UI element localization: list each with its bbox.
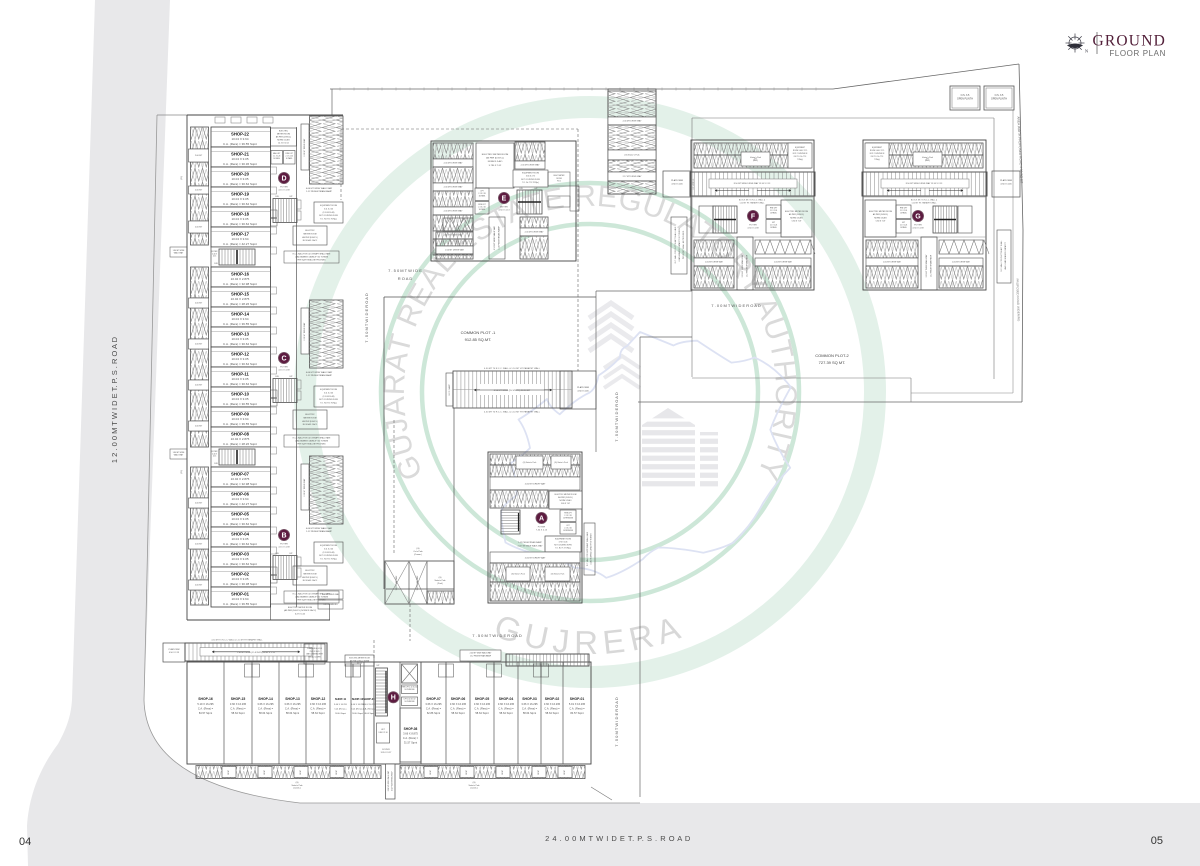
- svg-text:2.00 MT DRIVE WAY: 2.00 MT DRIVE WAY: [705, 261, 724, 264]
- svg-text:58.64 Sqmt: 58.64 Sqmt: [451, 711, 465, 715]
- svg-text:A: A: [539, 515, 544, 522]
- svg-text:SHOP-01: SHOP-01: [570, 697, 585, 701]
- svg-text:SHOP-12: SHOP-12: [231, 351, 250, 356]
- svg-text:2.00 MT DRIVE WAY: 2.00 MT DRIVE WAY: [525, 556, 546, 559]
- svg-text:SHOP-08: SHOP-08: [231, 431, 250, 436]
- svg-text:FIRE LIFT: FIRE LIFT: [770, 208, 777, 210]
- svg-text:T.O. Rs/77.5 TON(a): T.O. Rs/77.5 TON(a): [320, 219, 337, 221]
- svg-text:4.50 X 4.46: 4.50 X 4.46: [577, 390, 589, 392]
- svg-text:SHOP-01: SHOP-01: [231, 591, 250, 596]
- svg-text:7 . 5 0 M T W I D E R O A D: 7 . 5 0 M T W I D E R O A D: [614, 697, 619, 747]
- svg-text:ELECTRIC METER ROOM: ELECTRIC METER ROOM: [482, 154, 509, 156]
- svg-text:(G) Visitor's Park: (G) Visitor's Park: [523, 461, 537, 464]
- svg-text:2.1 X 2.26: 2.1 X 2.26: [900, 225, 907, 227]
- svg-text:R.C. WALL FOR DUCT/SHAFT SHALL: R.C. WALL FOR DUCT/SHAFT SHALL: [1000, 240, 1003, 271]
- svg-text:PER SQMT SHALL BE PROVIDED: PER SQMT SHALL BE PROVIDED: [682, 230, 685, 259]
- svg-text:(Comm.): (Comm.): [414, 554, 422, 556]
- svg-text:2.00 MT: 2.00 MT: [195, 544, 203, 546]
- svg-text:SHOP-03: SHOP-03: [231, 551, 250, 556]
- svg-text:6.47 X 4.25: 6.47 X 4.25: [295, 613, 306, 615]
- svg-text:AS PER (DGVCL): AS PER (DGVCL): [276, 136, 292, 139]
- svg-text:(AS PER (DGVCL) NORM 3.3 ACC): (AS PER (DGVCL) NORM 3.3 ACC): [284, 609, 316, 612]
- svg-text:HAVE LOAD BEARING CAPACITY: HAVE LOAD BEARING CAPACITY: [1004, 241, 1007, 270]
- svg-text:SHOP-07: SHOP-07: [231, 471, 250, 476]
- svg-text:(G) Visitor's Park: (G) Visitor's Park: [554, 461, 568, 464]
- svg-text:COMMON PLOT -1: COMMON PLOT -1: [461, 330, 497, 335]
- svg-text:10.04 X 2.875: 10.04 X 2.875: [231, 437, 250, 441]
- svg-text:10.04 X 2.875: 10.04 X 2.875: [231, 277, 250, 281]
- svg-text:AS PER (DGVCL): AS PER (DGVCL): [302, 420, 318, 423]
- svg-text:NL NOA 3.1 ACC: NL NOA 3.1 ACC: [303, 579, 318, 582]
- svg-text:PLATFORM: PLATFORM: [169, 648, 180, 651]
- svg-text:C.A. (Rera) =: C.A. (Rera) =: [403, 736, 419, 740]
- svg-text:2.0 MT: 2.0 MT: [264, 770, 266, 775]
- svg-text:2.00 MT: 2.00 MT: [195, 303, 203, 305]
- svg-text:PLATFORM: PLATFORM: [1000, 179, 1012, 182]
- svg-text:C.A. (Rera) = 42.27 Sqmt: C.A. (Rera) = 42.27 Sqmt: [223, 242, 257, 246]
- svg-text:C.A. (Rera) = 30.62 Sqmt: C.A. (Rera) = 30.62 Sqmt: [223, 222, 257, 226]
- svg-text:31.57 Sqmt: 31.57 Sqmt: [404, 740, 418, 744]
- svg-text:EQUIPMENT: EQUIPMENT: [795, 147, 805, 149]
- svg-text:1:12 PEDESTRIAN RAMP: 1:12 PEDESTRIAN RAMP: [306, 530, 332, 533]
- svg-text:BLOCK MT. T0 R.C.C. WALL &: BLOCK MT. T0 R.C.C. WALL &: [739, 199, 766, 202]
- svg-text:2.00 MT: 2.00 MT: [195, 585, 203, 587]
- svg-text:C.A. (Rera) =: C.A. (Rera) =: [334, 708, 347, 711]
- svg-text:FOYER: FOYER: [500, 207, 508, 209]
- svg-text:C.A. (Rera) =: C.A. (Rera) =: [569, 707, 585, 711]
- svg-text:(G) Visitor's Park: (G) Visitor's Park: [551, 573, 565, 576]
- svg-text:2.50 MT WIDE WALK WAY: 2.50 MT WIDE WALK WAY: [925, 254, 928, 278]
- svg-text:C.A. (Rera) = 30.36 Sqmt: C.A. (Rera) = 30.36 Sqmt: [223, 162, 257, 166]
- svg-text:F: F: [751, 213, 756, 220]
- svg-text:FSI T.O. Rs 77.3: FSI T.O. Rs 77.3: [871, 156, 884, 158]
- svg-text:SHOP-06: SHOP-06: [231, 491, 250, 496]
- svg-text:(3.3 LM 30.48): (3.3 LM 30.48): [323, 396, 335, 398]
- svg-text:2.00 MT: 2.00 MT: [195, 385, 203, 387]
- svg-text:NORM 3.2 AIO: NORM 3.2 AIO: [488, 160, 503, 163]
- svg-text:16 PERSONS: 16 PERSONS: [563, 518, 573, 520]
- svg-text:10.04 X 3.05: 10.04 X 3.05: [231, 577, 248, 581]
- svg-text:NORM 3.3 AIO: NORM 3.3 AIO: [790, 216, 803, 219]
- svg-text:EQUIPMENT ROOM: EQUIPMENT ROOM: [320, 389, 337, 391]
- svg-text:SHOP-03: SHOP-03: [522, 697, 537, 701]
- svg-text:2.50 MT WIDE WALK WAY: 2.50 MT WIDE WALK WAY: [741, 254, 744, 278]
- svg-text:Visitor's Park: Visitor's Park: [750, 156, 761, 159]
- svg-text:10.04 X 3.05: 10.04 X 3.05: [231, 217, 248, 221]
- svg-text:FOYER: FOYER: [749, 225, 757, 227]
- svg-text:58.64 Sqmt: 58.64 Sqmt: [499, 711, 513, 715]
- svg-text:C: C: [281, 355, 286, 362]
- svg-text:2.00 MT DRIVE WAY: 2.00 MT DRIVE WAY: [322, 593, 340, 596]
- svg-text:(G) Visitor's Park: (G) Visitor's Park: [624, 154, 639, 157]
- svg-text:3.66 X 16.295: 3.66 X 16.295: [474, 702, 491, 706]
- svg-text:16 PERSONS: 16 PERSONS: [404, 689, 414, 691]
- svg-text:SHOP-11: SHOP-11: [231, 371, 249, 376]
- svg-text:2.10 MT DRIVE WAY: 2.10 MT DRIVE WAY: [303, 478, 306, 497]
- svg-text:3.56 X 2.75: 3.56 X 2.75: [526, 176, 535, 178]
- svg-text:2.00 MT DRIVE WAY: 2.00 MT DRIVE WAY: [525, 482, 546, 485]
- svg-text:C.A. (Rera) = 32.98 Sqmt: C.A. (Rera) = 32.98 Sqmt: [223, 482, 257, 486]
- svg-text:5.80 X 7.07: 5.80 X 7.07: [876, 221, 886, 223]
- svg-text:8.50 MT WIDE DRIVE WAY 15.34: 8.50 MT WIDE DRIVE WAY 15.34 X 2.13: [906, 182, 943, 185]
- svg-text:4.50 MT T0 R.C.C. WALL & 1.10: 4.50 MT T0 R.C.C. WALL & 1.10 MT HT PARA…: [484, 411, 541, 414]
- svg-text:10.04 X 3.05: 10.04 X 3.05: [231, 537, 248, 541]
- svg-text:1.10 MT HT. PARAPET WALL: 1.10 MT HT. PARAPET WALL: [739, 202, 764, 205]
- svg-text:1:12 PEDESTRIAN RAMP: 1:12 PEDESTRIAN RAMP: [470, 655, 492, 658]
- svg-text:8.50 MT WIDE DRIVE WAY 15.34: 8.50 MT WIDE DRIVE WAY 15.34 X 2.13: [734, 182, 771, 185]
- svg-text:3.11 X 2.06: 3.11 X 2.06: [324, 392, 333, 394]
- svg-text:ELECTRIC: ELECTRIC: [305, 230, 315, 232]
- svg-text:10.04 X 3.05: 10.04 X 3.05: [231, 377, 248, 381]
- svg-text:10.04 X 3.05: 10.04 X 3.05: [231, 397, 248, 401]
- svg-text:(Max.): (Max.): [925, 160, 930, 162]
- svg-text:C.A. (Rera) = 36.55 Sqmt: C.A. (Rera) = 36.55 Sqmt: [223, 422, 257, 426]
- svg-text:FIRE LIFT: FIRE LIFT: [286, 153, 293, 155]
- svg-text:1.80 MT WIDE (15 STEPS) 28.02: 1.80 MT WIDE (15 STEPS) 28.02 X 2.13: [237, 652, 275, 654]
- svg-text:ELECTRIC: ELECTRIC: [279, 131, 289, 133]
- svg-text:4.50 X 4.38: 4.50 X 4.38: [912, 228, 924, 230]
- svg-text:5.790 X 7.02: 5.790 X 7.02: [489, 165, 502, 167]
- svg-text:C.A. (Rera) =: C.A. (Rera) =: [498, 707, 514, 711]
- svg-text:2.00 MT: 2.00 MT: [195, 227, 203, 229]
- svg-text:PLATFORM: PLATFORM: [671, 179, 683, 182]
- svg-text:SHOP-02: SHOP-02: [231, 571, 250, 576]
- svg-text:2.0 MT: 2.0 MT: [300, 770, 302, 775]
- svg-text:ROOM: ROOM: [556, 178, 562, 180]
- svg-text:1.10 MT HT. PARAPET WALL: 1.10 MT HT. PARAPET WALL: [911, 202, 936, 205]
- svg-text:SHOP-08: SHOP-08: [404, 727, 418, 731]
- svg-text:7.40 X 4.15: 7.40 X 4.15: [536, 530, 548, 532]
- svg-text:3.66 X 16.295: 3.66 X 16.295: [310, 702, 327, 706]
- svg-text:58.64 Sqmt: 58.64 Sqmt: [352, 712, 363, 715]
- svg-text:1:12 PEDESTRIAN RAMP: 1:12 PEDESTRIAN RAMP: [391, 770, 394, 791]
- svg-text:2.00 MT DRIVE WAY: 2.00 MT DRIVE WAY: [623, 120, 643, 123]
- svg-text:FLOOR PLAN: FLOOR PLAN: [1109, 49, 1166, 58]
- svg-text:Visitor's Park: Visitor's Park: [292, 784, 303, 787]
- svg-text:G: G: [915, 213, 921, 220]
- svg-text:10.04 X 3.64: 10.04 X 3.64: [231, 497, 248, 501]
- svg-text:62.86 Sqmt: 62.86 Sqmt: [427, 711, 441, 715]
- svg-text:AS PER (DGVCL): AS PER (DGVCL): [486, 157, 504, 160]
- svg-text:84.57 Sqmt: 84.57 Sqmt: [570, 711, 584, 715]
- svg-text:SHOP-09: SHOP-09: [363, 697, 375, 701]
- svg-text:(G): (G): [296, 782, 299, 784]
- svg-text:C.A. (Rera) = 30.62 Sqmt: C.A. (Rera) = 30.62 Sqmt: [223, 202, 257, 206]
- svg-text:7 . 5 0 M T W I D E R O A D: 7 . 5 0 M T W I D E R O A D: [614, 392, 619, 442]
- svg-text:4.50 MT WIDE WALK WAY: 4.50 MT WIDE WALK WAY: [493, 225, 496, 250]
- svg-text:5.80 X 7.07: 5.80 X 7.07: [792, 221, 802, 223]
- svg-text:(3.3 LM 30.48): (3.3 LM 30.48): [323, 212, 335, 214]
- svg-text:3.66 X 16.295: 3.66 X 16.295: [521, 702, 538, 706]
- svg-text:SHOP-10: SHOP-10: [352, 697, 364, 701]
- svg-text:T.O. Rs 77.3 TON(a): T.O. Rs 77.3 TON(a): [522, 182, 539, 184]
- svg-text:2.1 X 2.26: 2.1 X 2.26: [770, 210, 777, 212]
- svg-text:2 4 . 0 0 M T W I D E T. P.: 2 4 . 0 0 M T W I D E T. P. S . R O A D: [545, 834, 691, 843]
- svg-text:OPEN PLINTH: OPEN PLINTH: [957, 97, 973, 100]
- svg-text:ELECTRIC METER ROOM: ELECTRIC METER ROOM: [288, 607, 313, 609]
- svg-text:Visitor's Park: Visitor's Park: [435, 579, 446, 582]
- svg-text:NOT COUNTED IN FSI: NOT COUNTED IN FSI: [554, 545, 572, 547]
- svg-text:2.00 MT DRIVE WAY: 2.00 MT DRIVE WAY: [444, 186, 464, 189]
- svg-text:NOT COUNTED IN: NOT COUNTED IN: [870, 153, 885, 155]
- svg-text:1:12 PEDESTRIAN RAMP: 1:12 PEDESTRIAN RAMP: [518, 541, 542, 544]
- svg-text:3.66 X 16.295: 3.66 X 16.295: [450, 702, 467, 706]
- svg-text:2.0 MT: 2.0 MT: [228, 770, 230, 775]
- svg-text:2.00 MT: 2.00 MT: [195, 503, 203, 505]
- svg-text:14.72 X 0.52: 14.72 X 0.52: [278, 143, 289, 145]
- svg-text:FOYER: FOYER: [280, 367, 288, 369]
- svg-text:C.A. (Rera) =: C.A. (Rera) =: [426, 707, 442, 711]
- svg-text:10.04 X 3.05: 10.04 X 3.05: [231, 337, 248, 341]
- svg-text:COMMON PLOT-2: COMMON PLOT-2: [815, 353, 849, 358]
- svg-text:16 PERSONS: 16 PERSONS: [563, 530, 573, 532]
- svg-text:NOT COUNTED IN FSI: NOT COUNTED IN FSI: [319, 399, 338, 401]
- svg-text:1:12 PEDESTRIAN RAMP: 1:12 PEDESTRIAN RAMP: [930, 254, 933, 277]
- svg-text:2.10 MT DRIVE WAY: 2.10 MT DRIVE WAY: [303, 138, 306, 157]
- svg-text:AS PER (DGVCL) NORM: AS PER (DGVCL) NORM: [350, 659, 370, 662]
- svg-text:2.0 MT: 2.0 MT: [336, 770, 338, 775]
- svg-text:FIRE LIFT: FIRE LIFT: [478, 204, 485, 206]
- svg-text:NL NOA 3.1 ACC: NL NOA 3.1 ACC: [303, 423, 318, 426]
- svg-text:10.04 X 3.64: 10.04 X 3.64: [231, 417, 248, 421]
- svg-text:4.15: 4.15: [213, 256, 216, 258]
- svg-text:D: D: [281, 175, 286, 182]
- svg-text:NOT COUNTED IN FSI: NOT COUNTED IN FSI: [319, 215, 338, 217]
- svg-text:4.15 X 4.38: 4.15 X 4.38: [278, 547, 290, 549]
- svg-text:3.66 X 16.295: 3.66 X 16.295: [425, 702, 442, 706]
- svg-text:4.60 MT WIDE WALK WAY: 4.60 MT WIDE WALK WAY: [306, 371, 333, 374]
- svg-text:(Comm.): (Comm.): [293, 788, 301, 790]
- svg-text:(G): (G): [181, 176, 183, 179]
- svg-text:2.00 MT: 2.00 MT: [195, 155, 203, 157]
- svg-text:10.04 X 3.05: 10.04 X 3.05: [231, 197, 248, 201]
- svg-text:NORM 3.3 AIO: NORM 3.3 AIO: [874, 216, 887, 219]
- svg-text:SHOP-10: SHOP-10: [231, 391, 250, 396]
- svg-text:PER SQMT SHALL BE PROVIDED: PER SQMT SHALL BE PROVIDED: [297, 442, 326, 445]
- svg-text:4.50 X 4.46: 4.50 X 4.46: [1000, 183, 1012, 185]
- svg-text:2.00 MT WIDE WALK WAY: 2.00 MT WIDE WALK WAY: [387, 770, 390, 791]
- svg-text:NL NOA 3.1 ACC: NL NOA 3.1 ACC: [303, 239, 318, 242]
- svg-text:(Comm.): (Comm.): [470, 788, 478, 790]
- svg-text:NOT COUNTED IN FSI: NOT COUNTED IN FSI: [319, 555, 338, 557]
- svg-text:LOAD BEARING CAPACITY 60 TONNE: LOAD BEARING CAPACITY 60 TONNES: [590, 533, 593, 565]
- svg-text:58.64 Sqmt: 58.64 Sqmt: [335, 712, 346, 715]
- svg-text:LVL +0.30 LVL: LVL +0.30 LVL: [693, 178, 695, 189]
- svg-text:2.00 MT DRIVE WAY: 2.00 MT DRIVE WAY: [521, 164, 541, 167]
- svg-text:2.1 X 2.26: 2.1 X 2.26: [564, 528, 571, 530]
- svg-text:3.66 X 16.295: 3.66 X 16.295: [284, 702, 301, 706]
- svg-text:FSI T.O. Rs 77.3: FSI T.O. Rs 77.3: [794, 156, 807, 158]
- svg-text:C.A. (Rera) = 30.62 Sqmt: C.A. (Rera) = 30.62 Sqmt: [223, 562, 257, 566]
- svg-text:SHOP-04: SHOP-04: [231, 531, 250, 536]
- svg-text:2.00 MT DRIVE WAY: 2.00 MT DRIVE WAY: [445, 249, 465, 252]
- svg-text:AS PER (DGVCL): AS PER (DGVCL): [302, 576, 318, 579]
- svg-text:4.15: 4.15: [213, 456, 216, 458]
- svg-text:2.00 MT DRIVE WAY: 2.00 MT DRIVE WAY: [525, 231, 545, 234]
- svg-text:2.1 X 2.26: 2.1 X 2.26: [564, 515, 571, 517]
- svg-text:2.00 MT DRIVE WAY: 2.00 MT DRIVE WAY: [774, 261, 793, 264]
- svg-text:C.A. (Rera) = 30.62 Sqmt: C.A. (Rera) = 30.62 Sqmt: [223, 382, 257, 386]
- svg-text:AS PER (DGVCL): AS PER (DGVCL): [789, 213, 805, 216]
- svg-text:3.66 X 16.295: 3.66 X 16.295: [498, 702, 515, 706]
- svg-text:DN: DN: [275, 376, 279, 378]
- svg-text:FIRE LIFT: FIRE LIFT: [900, 208, 907, 210]
- svg-text:2.1 X 2.26: 2.1 X 2.26: [900, 210, 907, 212]
- svg-text:H: H: [391, 695, 396, 702]
- svg-text:C.A. (Rera) = 30.62 Sqmt: C.A. (Rera) = 30.62 Sqmt: [223, 362, 257, 366]
- svg-text:2.0 MT: 2.0 MT: [564, 770, 566, 775]
- svg-text:SHOP-11: SHOP-11: [335, 697, 347, 701]
- svg-text:5.19 X 16.295: 5.19 X 16.295: [569, 702, 586, 706]
- svg-text:NORM 3.2 AIO: NORM 3.2 AIO: [277, 139, 290, 142]
- svg-text:AS PER (DGVCL): AS PER (DGVCL): [873, 213, 889, 216]
- svg-text:NOT COUNTED IN: NOT COUNTED IN: [793, 153, 808, 155]
- svg-text:7 . 5 0 M T W I D E R O A D: 7 . 5 0 M T W I D E R O A D: [472, 633, 522, 638]
- svg-text:C.A. (Rera) =: C.A. (Rera) =: [230, 707, 246, 711]
- svg-text:912.85 SQ.MT.: 912.85 SQ.MT.: [465, 337, 492, 342]
- svg-text:DN: DN: [275, 196, 279, 198]
- svg-text:3.3 X 2 PARKING: 3.3 X 2 PARKING: [323, 603, 338, 606]
- svg-text:FIRE LIFT: FIRE LIFT: [564, 513, 571, 515]
- svg-text:C.A. (Rera) =: C.A. (Rera) =: [522, 707, 538, 711]
- svg-text:FOYER: FOYER: [280, 544, 288, 546]
- svg-text:58.64 Sqmt: 58.64 Sqmt: [231, 711, 245, 715]
- svg-text:3.95 X 3.17: 3.95 X 3.17: [381, 752, 392, 754]
- svg-text:10.04 X 3.05: 10.04 X 3.05: [231, 517, 248, 521]
- svg-text:727.39 SQ MT.: 727.39 SQ MT.: [819, 360, 846, 365]
- svg-text:2.00 MT: 2.00 MT: [195, 344, 203, 346]
- svg-text:SHOP-07: SHOP-07: [426, 697, 441, 701]
- svg-text:C.A. (Rera) = 42.27 Sqmt: C.A. (Rera) = 42.27 Sqmt: [223, 502, 257, 506]
- svg-text:LOAD BEARING CAPACITY 60 TONNE: LOAD BEARING CAPACITY 60 TONNES: [678, 228, 681, 262]
- svg-text:(Max.): (Max.): [753, 160, 758, 162]
- svg-text:58.64 Sqmt: 58.64 Sqmt: [523, 711, 537, 715]
- svg-text:LOAD BEARING CAPACITY 60 TONNE: LOAD BEARING CAPACITY 60 TONNES: [295, 439, 329, 442]
- svg-text:10.04 X 2.875: 10.04 X 2.875: [231, 477, 250, 481]
- svg-text:ELECTRIC: ELECTRIC: [305, 570, 315, 572]
- svg-text:PLATFORM: PLATFORM: [577, 386, 589, 389]
- svg-text:16 PERSONS: 16 PERSONS: [404, 701, 414, 703]
- svg-text:SHOP-13: SHOP-13: [285, 697, 300, 701]
- svg-text:(G) Visitor's Park: (G) Visitor's Park: [511, 573, 525, 576]
- svg-text:ROOM 3.66 X 2.75: ROOM 3.66 X 2.75: [793, 150, 807, 152]
- svg-text:2.0 MT: 2.0 MT: [502, 770, 504, 775]
- svg-text:4.60 MT WIDE WALK WAY: 4.60 MT WIDE WALK WAY: [306, 187, 333, 190]
- svg-text:(3.3 LM 30.48): (3.3 LM 30.48): [323, 552, 335, 554]
- svg-text:Visitor's Park: Visitor's Park: [922, 156, 933, 159]
- svg-text:R O A D: R O A D: [398, 276, 413, 281]
- svg-text:GROUND: GROUND: [1092, 33, 1166, 50]
- svg-text:4.15 X 4.38: 4.15 X 4.38: [278, 190, 290, 192]
- svg-text:METER ROOM: METER ROOM: [303, 233, 316, 235]
- svg-text:TON(a): TON(a): [874, 159, 880, 161]
- svg-text:5.19 X 16.295: 5.19 X 16.295: [197, 702, 214, 706]
- svg-text:(G): (G): [181, 470, 183, 473]
- svg-text:EQUIPMENT ROOM: EQUIPMENT ROOM: [555, 539, 571, 541]
- svg-text:METER ROOM: METER ROOM: [277, 134, 290, 136]
- svg-text:SHOP-12: SHOP-12: [311, 697, 326, 701]
- svg-text:1 2 . 0 0 M T W I D E T. P.: 1 2 . 0 0 M T W I D E T. P. S . R O A D: [110, 336, 119, 463]
- svg-text:2.00 MT: 2.00 MT: [195, 426, 203, 428]
- svg-text:C.A. (Rera) = 30.55 Sqmt: C.A. (Rera) = 30.55 Sqmt: [223, 402, 257, 406]
- svg-text:DN: DN: [275, 553, 279, 555]
- svg-text:FOYER: FOYER: [382, 749, 390, 751]
- svg-text:SHOP-16: SHOP-16: [198, 697, 213, 701]
- svg-text:ELECTRIC: ELECTRIC: [305, 414, 315, 416]
- svg-text:SHOP-05: SHOP-05: [475, 697, 490, 701]
- svg-text:10.04 X 3.64: 10.04 X 3.64: [231, 597, 248, 601]
- svg-text:04: 04: [19, 836, 31, 848]
- svg-text:4.50 X 2.13: 4.50 X 2.13: [169, 652, 180, 654]
- svg-text:1 ECS CAR PARK: 1 ECS CAR PARK: [416, 575, 419, 591]
- svg-text:4.50 MT T0 R.C.C. WALL & 1.10: 4.50 MT T0 R.C.C. WALL & 1.10 MT HT PARA…: [211, 639, 263, 642]
- svg-text:SHOP-16: SHOP-16: [231, 271, 250, 276]
- svg-text:84.57 Sqmt: 84.57 Sqmt: [199, 711, 213, 715]
- svg-text:(G): (G): [439, 577, 442, 579]
- svg-text:2.00 MT DRIVE WAY: 2.00 MT DRIVE WAY: [444, 210, 464, 213]
- svg-text:TON(a): TON(a): [797, 159, 803, 161]
- svg-text:2.1 X 2.26: 2.1 X 2.26: [478, 207, 485, 209]
- svg-text:58.64 Sqmt: 58.64 Sqmt: [364, 712, 375, 715]
- svg-text:2.0 MT: 2.0 MT: [538, 770, 540, 775]
- svg-text:2.00 MT DRIVE WAY: 2.00 MT DRIVE WAY: [952, 261, 971, 264]
- svg-text:METER ROOM: METER ROOM: [303, 417, 316, 419]
- svg-text:WALK WAY: WALK WAY: [174, 251, 184, 254]
- svg-text:ELECTRIC METER ROOM: ELECTRIC METER ROOM: [349, 658, 370, 660]
- svg-text:PV-1: PV-1: [557, 181, 561, 183]
- svg-text:2.00 MT: 2.00 MT: [195, 190, 203, 192]
- svg-text:(G): (G): [473, 782, 476, 784]
- svg-text:LIFT 2.60 X 1.92: LIFT 2.60 X 1.92: [404, 699, 416, 701]
- svg-text:2.1 X 2.26: 2.1 X 2.26: [273, 156, 280, 158]
- svg-text:SHOP-22: SHOP-22: [231, 131, 250, 136]
- svg-text:4.60 MT WIDE WALK WAY: 4.60 MT WIDE WALK WAY: [306, 527, 333, 530]
- svg-text:C.A. (Rera) = 36.55 Sqmt: C.A. (Rera) = 36.55 Sqmt: [223, 142, 257, 146]
- svg-text:SHOP-04: SHOP-04: [499, 697, 514, 701]
- svg-text:EQUIPMENT ROOM: EQUIPMENT ROOM: [522, 173, 539, 175]
- svg-text:3.80 X 2.10: 3.80 X 2.10: [378, 732, 387, 734]
- svg-text:C.A. (Rera) = 30.62 Sqmt: C.A. (Rera) = 30.62 Sqmt: [223, 342, 257, 346]
- svg-text:4.50 X 4.13: 4.50 X 4.13: [498, 210, 510, 212]
- svg-text:EQUIPMENT ROOM: EQUIPMENT ROOM: [320, 545, 337, 547]
- svg-text:EQUIPMENT ROOM: EQUIPMENT ROOM: [320, 205, 337, 207]
- svg-text:2.1 X 2.26: 2.1 X 2.26: [770, 225, 777, 227]
- svg-text:SHOP-05: SHOP-05: [231, 511, 250, 516]
- svg-text:7 . 5 0 M T W I D E R O A D: 7 . 5 0 M T W I D E R O A D: [364, 293, 369, 343]
- svg-text:SHOP-15: SHOP-15: [231, 291, 250, 296]
- svg-text:LIFT: LIFT: [480, 191, 483, 193]
- svg-text:DN: DN: [519, 188, 523, 190]
- svg-text:05: 05: [1151, 835, 1163, 847]
- svg-text:SHOP-21: SHOP-21: [231, 151, 250, 156]
- svg-text:2.0 MT: 2.0 MT: [466, 770, 468, 775]
- svg-text:1 ECS CAR PARK: 1 ECS CAR PARK: [395, 575, 398, 591]
- svg-text:4.50 MT T0 R.C.C. WALL & 1.10: 4.50 MT T0 R.C.C. WALL & 1.10 MT HT PARA…: [484, 367, 541, 370]
- svg-text:ROOM 3.66 X 2.75: ROOM 3.66 X 2.75: [870, 150, 884, 152]
- svg-text:C.A. (Rera) = 30.38 Sqmt: C.A. (Rera) = 30.38 Sqmt: [223, 582, 257, 586]
- svg-text:WALK WAY: WALK WAY: [174, 453, 184, 456]
- svg-text:E: E: [502, 195, 507, 202]
- svg-text:5.80 X 7.07: 5.80 X 7.07: [561, 503, 570, 505]
- svg-text:1:12 PEDESTRIAN RAMP: 1:12 PEDESTRIAN RAMP: [306, 374, 332, 377]
- svg-text:(G): (G): [417, 548, 420, 550]
- svg-text:FIRE LIFT 2.10 X 2.60: FIRE LIFT 2.10 X 2.60: [402, 687, 418, 689]
- svg-text:FOYER: FOYER: [914, 225, 922, 227]
- svg-text:1:12 PEDESTRIAN RAMP: 1:12 PEDESTRIAN RAMP: [498, 226, 501, 250]
- svg-text:10.04 X 3.64: 10.04 X 3.64: [231, 137, 248, 141]
- svg-text:10.04 X 2.875: 10.04 X 2.875: [231, 297, 250, 301]
- svg-text:1:12 PEDESTRIAN RAMP: 1:12 PEDESTRIAN RAMP: [746, 254, 749, 277]
